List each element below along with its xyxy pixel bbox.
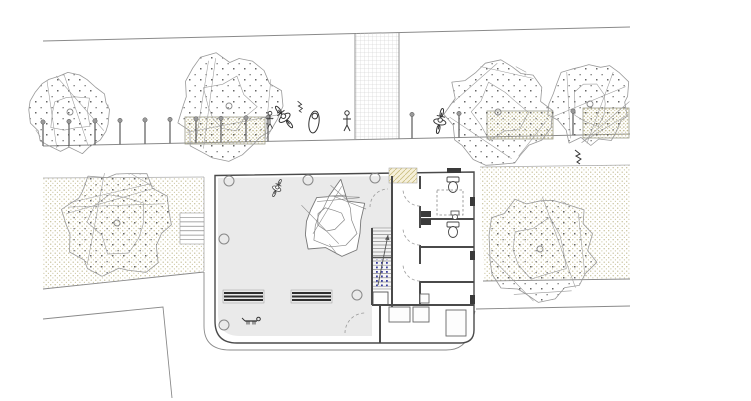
tree-canopy xyxy=(178,53,283,162)
right-garden-edge-line xyxy=(476,306,630,309)
site-plan-drawing xyxy=(0,0,751,401)
person-figure-scribble xyxy=(575,150,581,164)
bollard-top xyxy=(457,111,461,115)
stair-upper-flight xyxy=(372,228,392,257)
door-jamb xyxy=(447,168,461,173)
person-figure-scribble xyxy=(298,101,303,112)
person-figure-stander xyxy=(343,111,351,131)
sketch-figure xyxy=(575,150,581,164)
walker-head xyxy=(312,113,318,119)
stair-closet xyxy=(373,292,388,305)
bollard-top xyxy=(143,118,147,122)
bollard-top xyxy=(168,117,172,121)
sink xyxy=(421,211,431,217)
bollard-top xyxy=(571,109,575,113)
door-jamb xyxy=(470,251,475,260)
furniture xyxy=(420,294,429,303)
person-figure-walker xyxy=(308,110,321,133)
bollard-top xyxy=(410,112,414,116)
bollard-top xyxy=(194,117,198,121)
street-top-edge-line xyxy=(43,27,630,41)
bollard-top xyxy=(41,120,45,124)
door-jamb xyxy=(470,197,475,206)
crosswalk xyxy=(355,33,399,139)
furniture xyxy=(446,310,466,336)
entrance-mat-hatch xyxy=(389,168,417,183)
sketch-figure xyxy=(298,101,303,112)
stander-leg xyxy=(344,125,347,131)
stander-leg xyxy=(347,125,350,131)
courtyard-paving xyxy=(218,176,392,336)
bollard-top xyxy=(219,116,223,120)
bollard-top xyxy=(93,119,97,123)
bollard-top xyxy=(118,118,122,122)
bollard-top xyxy=(266,115,270,119)
site-plan-page: Architectural site plan — ground floor w… xyxy=(0,0,751,401)
toilet-bowl xyxy=(449,182,458,193)
sink xyxy=(421,219,431,225)
tree-canopy-outline xyxy=(489,199,597,302)
bollard-top xyxy=(67,119,71,123)
bollard-top xyxy=(244,116,248,120)
tree-canopy-outline xyxy=(178,53,283,162)
toilet-bowl xyxy=(449,227,458,238)
rider-head xyxy=(438,117,443,122)
stander-head xyxy=(345,111,349,115)
door-jamb xyxy=(470,295,475,304)
street-curb-line xyxy=(43,307,172,398)
furniture xyxy=(389,307,410,322)
furniture xyxy=(413,307,429,322)
